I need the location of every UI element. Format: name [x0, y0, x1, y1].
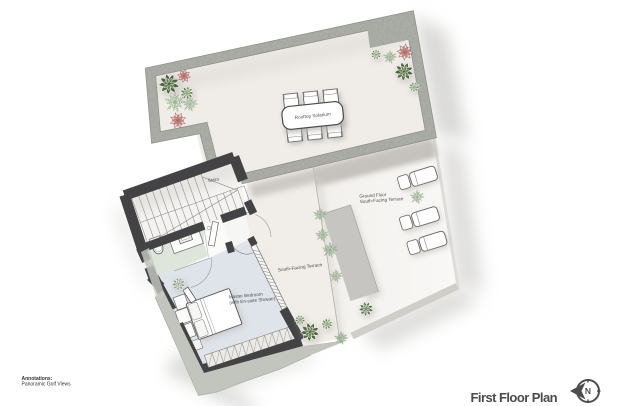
- svg-text:First Floor Plan: First Floor Plan: [471, 390, 558, 405]
- svg-text:Panoramic Golf Views: Panoramic Golf Views: [22, 382, 72, 388]
- svg-text:N: N: [585, 386, 591, 396]
